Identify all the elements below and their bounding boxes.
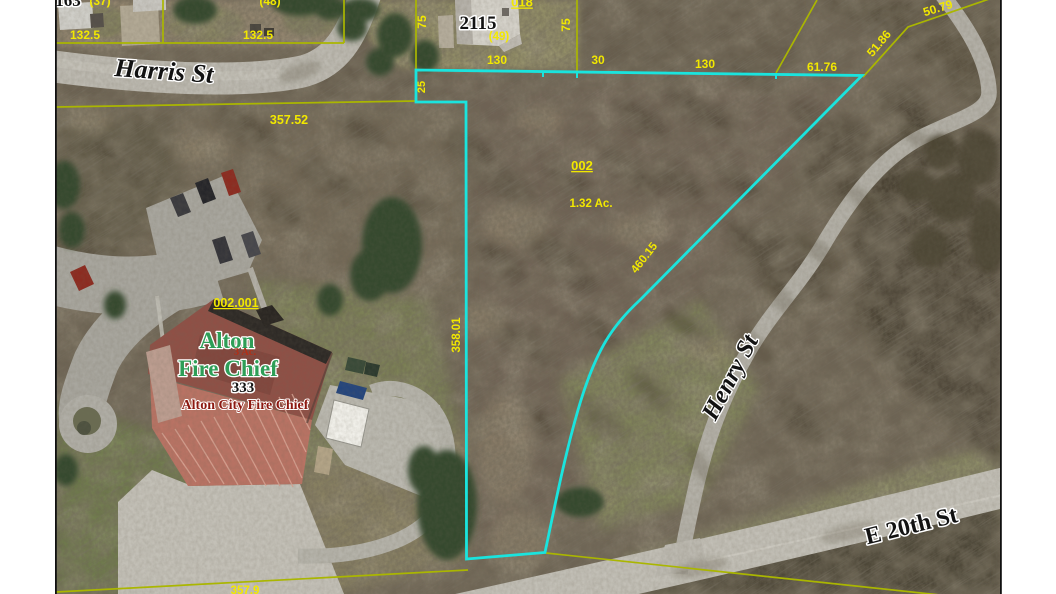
svg-text:132.5: 132.5 (70, 28, 100, 42)
svg-text:132.5: 132.5 (243, 28, 273, 42)
svg-text:163: 163 (55, 0, 81, 10)
svg-text:(37): (37) (89, 0, 110, 8)
svg-text:357.52: 357.52 (270, 113, 308, 127)
svg-text:61.76: 61.76 (807, 60, 837, 74)
svg-text:130: 130 (695, 57, 715, 71)
svg-text:002.001: 002.001 (213, 296, 258, 310)
svg-text:Fire Chief: Fire Chief (178, 356, 278, 381)
svg-text:333: 333 (232, 380, 255, 396)
svg-text:358.01: 358.01 (451, 317, 463, 353)
svg-text:25: 25 (416, 81, 428, 93)
svg-text:75: 75 (559, 18, 573, 32)
svg-text:75: 75 (415, 15, 429, 29)
svg-text:2115: 2115 (460, 13, 497, 34)
svg-text:1.32 Ac.: 1.32 Ac. (569, 198, 612, 210)
svg-text:Alton City Fire Chief: Alton City Fire Chief (182, 398, 309, 413)
svg-text:3 Ac.: 3 Ac. (234, 347, 257, 358)
svg-text:130: 130 (487, 53, 507, 67)
svg-text:002: 002 (571, 158, 593, 173)
svg-text:(48): (48) (259, 0, 280, 8)
svg-text:357.9: 357.9 (231, 585, 260, 594)
svg-text:018: 018 (511, 0, 533, 10)
svg-text:30: 30 (591, 53, 605, 67)
